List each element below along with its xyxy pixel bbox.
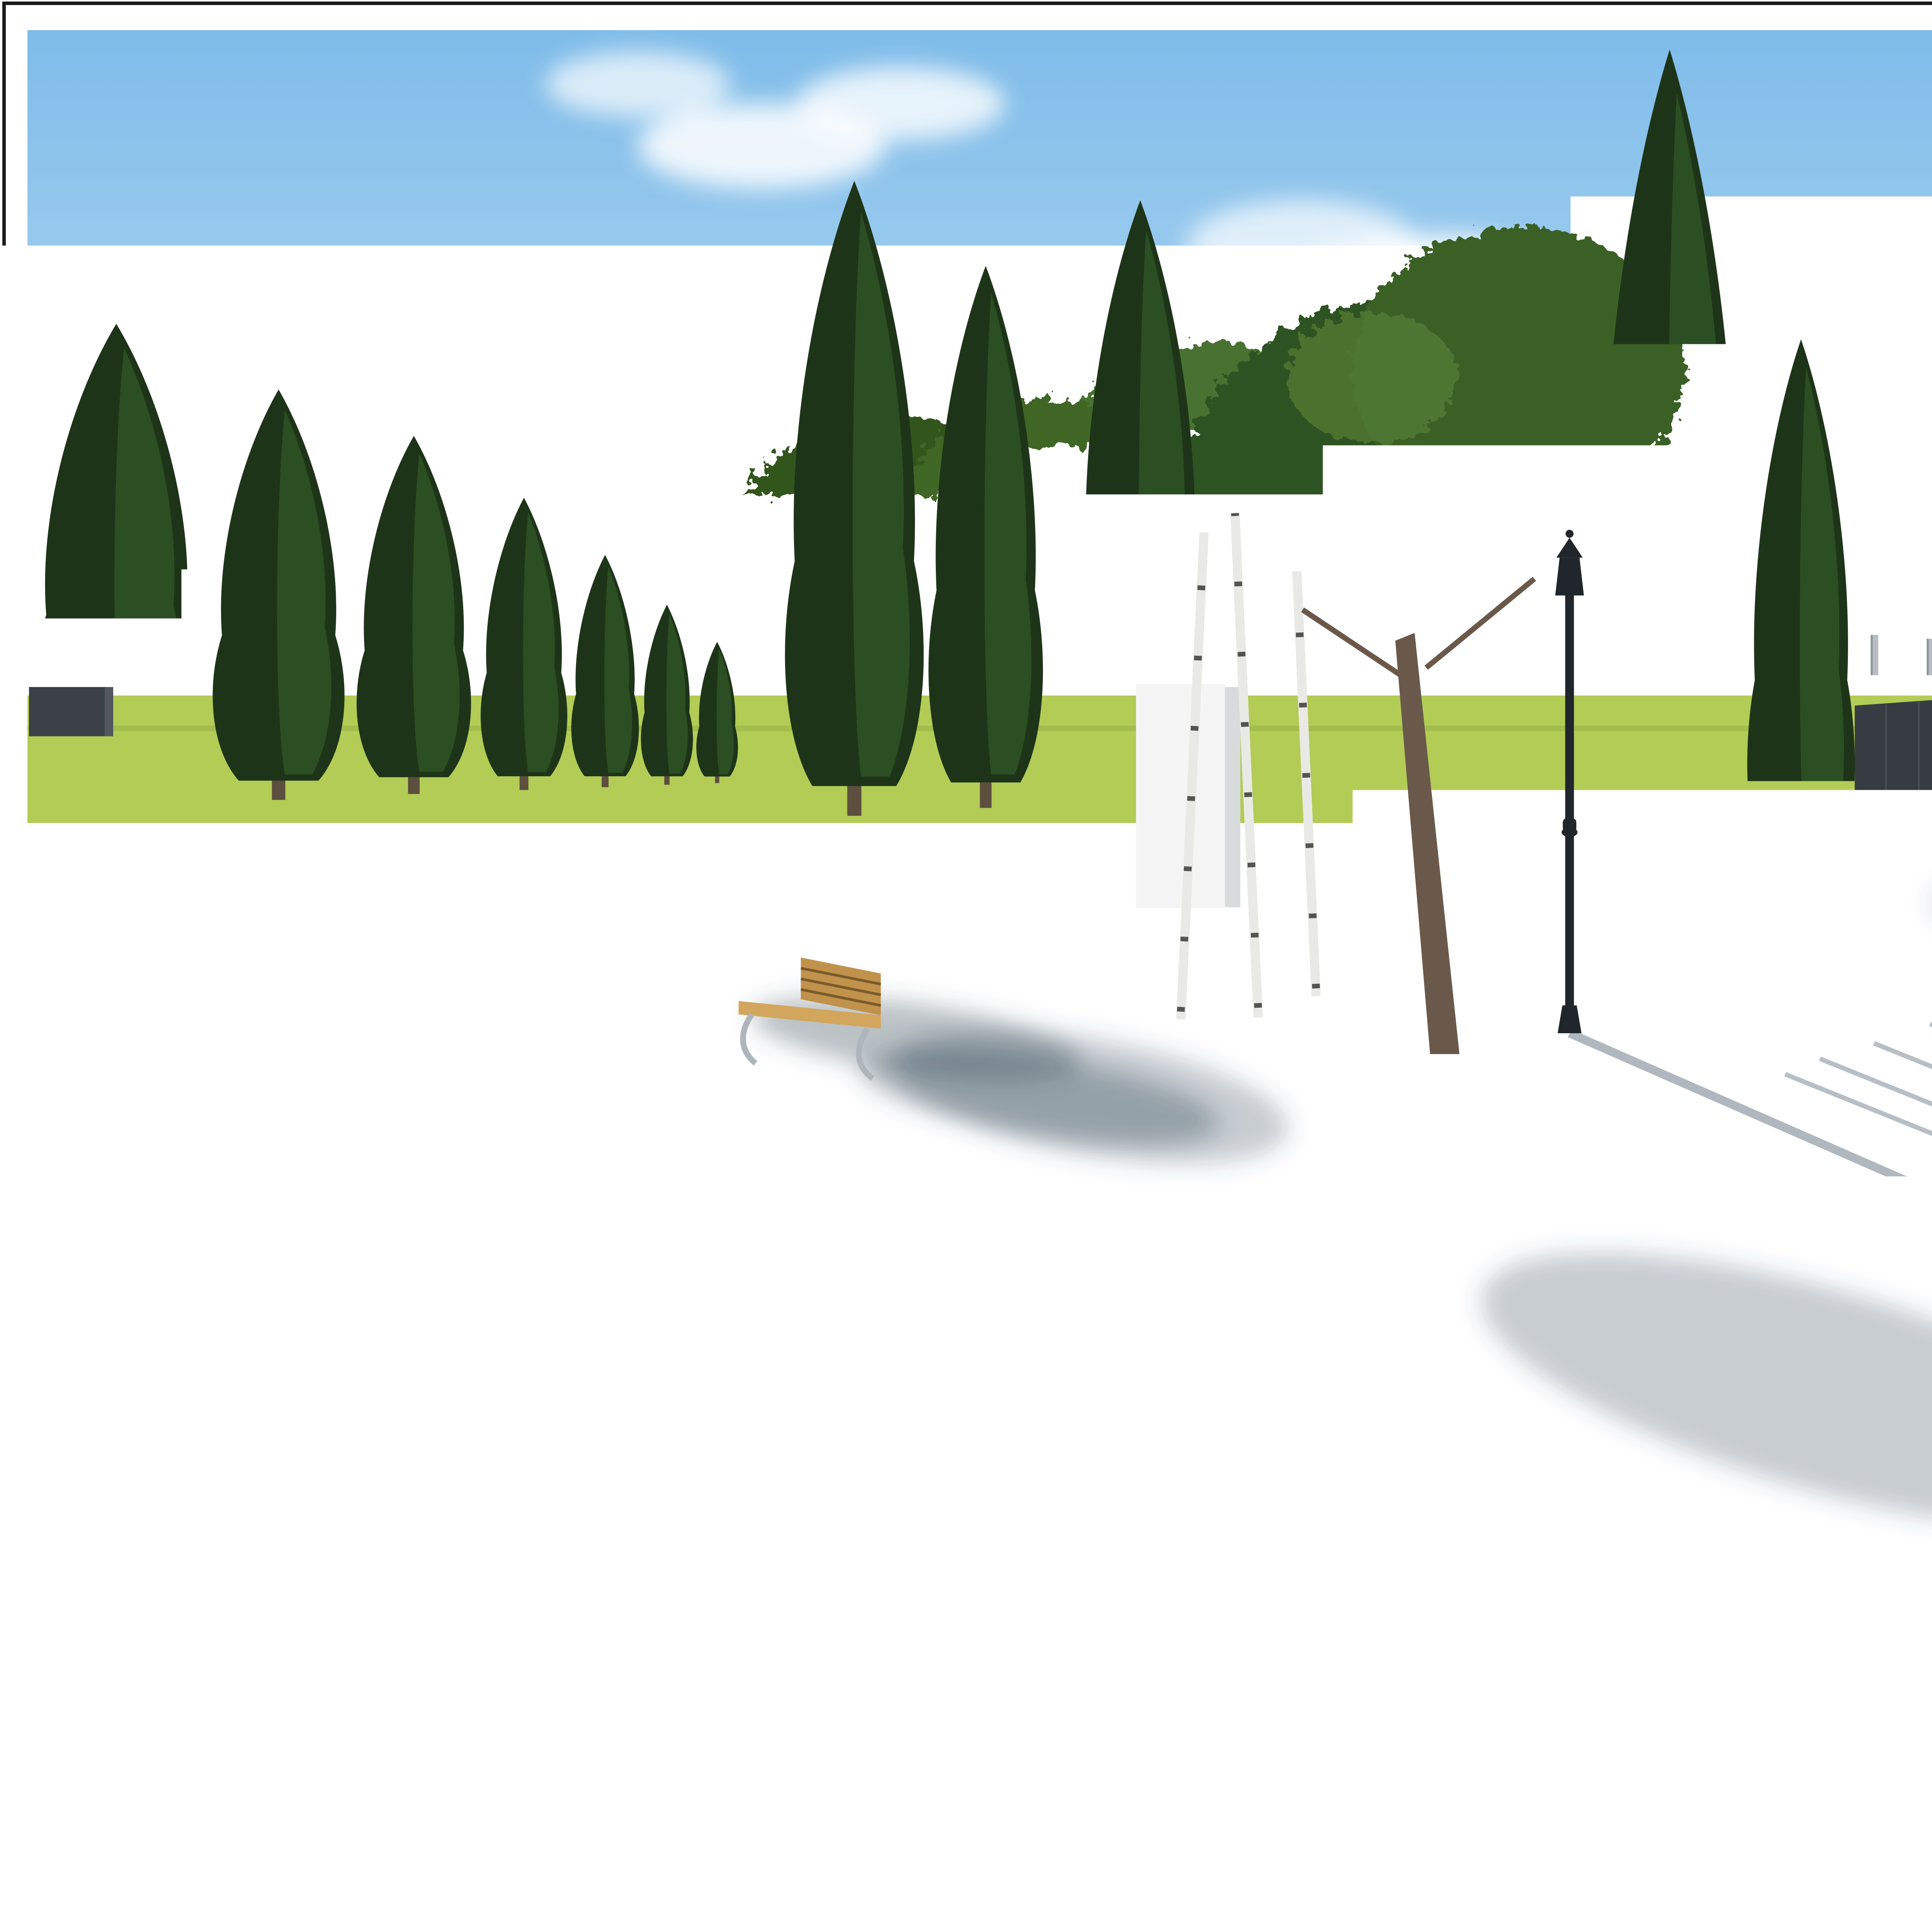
staircase <box>155 1031 800 1177</box>
revision-change-label: Изм. <box>1655 1919 1716 1932</box>
drawing-sheet: { "sheet": { "background": "#ffffff", "f… <box>0 0 1932 1932</box>
park-visualization <box>27 30 1932 1643</box>
revision-doc-label: №Док <box>1854 1919 1923 1932</box>
revision-col2-label <box>1716 1919 1786 1932</box>
sunken-lawn <box>143 850 794 1043</box>
title-block-grid <box>1655 1818 1932 1932</box>
revision-sign-label: Подпись <box>1923 1919 1932 1932</box>
title-block: Изм. Лист №Док Подпись Дата Разработ Али… <box>1655 1818 1932 1932</box>
revision-sheet-label: Лист <box>1786 1919 1854 1932</box>
